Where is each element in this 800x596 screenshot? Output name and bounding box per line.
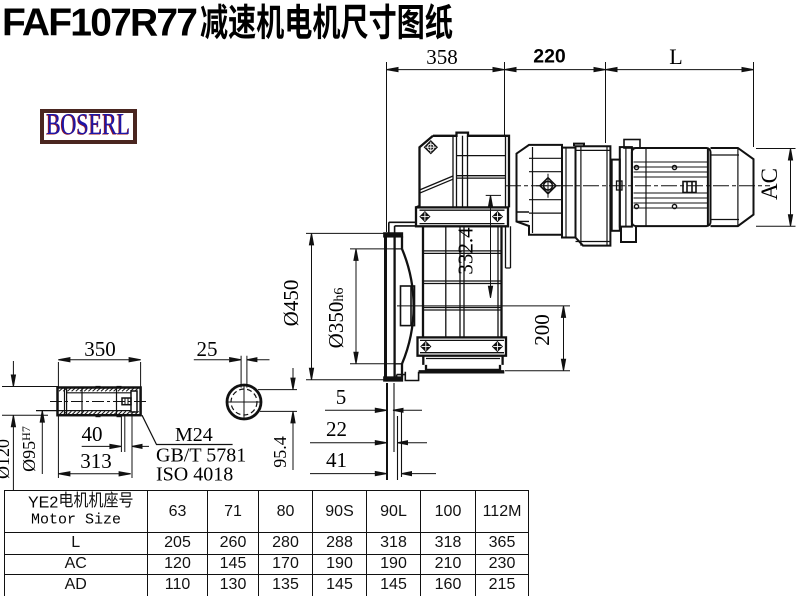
svg-text:332.4: 332.4 bbox=[454, 227, 478, 275]
svg-text:Ø350h6: Ø350h6 bbox=[324, 288, 348, 349]
svg-text:Ø450: Ø450 bbox=[279, 280, 303, 327]
svg-text:AC: AC bbox=[757, 168, 782, 200]
svg-text:313: 313 bbox=[80, 449, 112, 473]
svg-text:5: 5 bbox=[336, 385, 347, 409]
svg-text:200: 200 bbox=[530, 314, 554, 346]
svg-text:Ø120: Ø120 bbox=[0, 439, 13, 479]
svg-text:350: 350 bbox=[84, 337, 116, 361]
svg-text:25: 25 bbox=[197, 337, 218, 361]
svg-text:YE2: YE2 bbox=[28, 495, 58, 512]
svg-text:40: 40 bbox=[82, 422, 103, 446]
svg-text:358: 358 bbox=[426, 45, 458, 69]
svg-text:220: 220 bbox=[533, 46, 566, 68]
svg-text:95.4: 95.4 bbox=[270, 436, 290, 468]
svg-text:M24: M24 bbox=[175, 424, 213, 446]
svg-text:22: 22 bbox=[326, 417, 347, 441]
svg-text:L: L bbox=[669, 44, 682, 69]
svg-text:ISO 4018: ISO 4018 bbox=[156, 464, 233, 486]
svg-text:Motor Size: Motor Size bbox=[31, 512, 121, 528]
svg-text:Ø95H7: Ø95H7 bbox=[19, 426, 39, 472]
svg-text:41: 41 bbox=[326, 448, 347, 472]
